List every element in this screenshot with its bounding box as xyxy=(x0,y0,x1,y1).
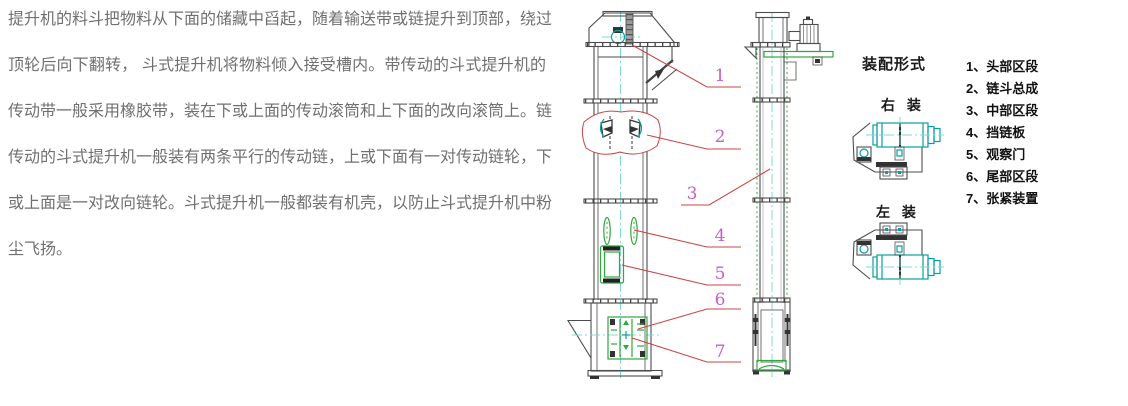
callout-1: 1 xyxy=(711,66,729,86)
side-view xyxy=(745,12,833,377)
mount-view-right xyxy=(853,117,944,179)
callout-5: 5 xyxy=(711,264,729,284)
assembly-form-title: 装配形式 xyxy=(862,53,926,74)
mount-view-left xyxy=(853,223,944,285)
callout-4: 4 xyxy=(711,226,729,246)
legend-item: 7、张紧装置 xyxy=(966,188,1038,210)
front-view xyxy=(568,12,679,380)
legend-item: 3、中部区段 xyxy=(966,100,1038,122)
mount-right-label: 右 装 xyxy=(881,95,925,115)
page: 提升机的料斗把物料从下面的储藏中舀起，随着输送带或链提升到顶部，绕过 顶轮后向下… xyxy=(0,0,1128,406)
bucket-elevator-drawing xyxy=(0,0,1128,406)
callout-6: 6 xyxy=(711,290,729,310)
callout-3: 3 xyxy=(683,184,701,204)
legend-item: 4、挡链板 xyxy=(966,122,1038,144)
parts-legend: 1、头部区段 2、链斗总成 3、中部区段 4、挡链板 5、观察门 6、尾部区段 … xyxy=(966,56,1038,210)
legend-item: 5、观察门 xyxy=(966,144,1038,166)
callout-7: 7 xyxy=(711,342,729,362)
legend-item: 2、链斗总成 xyxy=(966,78,1038,100)
legend-item: 1、头部区段 xyxy=(966,56,1038,78)
legend-item: 6、尾部区段 xyxy=(966,166,1038,188)
mount-left-label: 左 装 xyxy=(876,202,920,222)
callout-2: 2 xyxy=(711,127,729,147)
